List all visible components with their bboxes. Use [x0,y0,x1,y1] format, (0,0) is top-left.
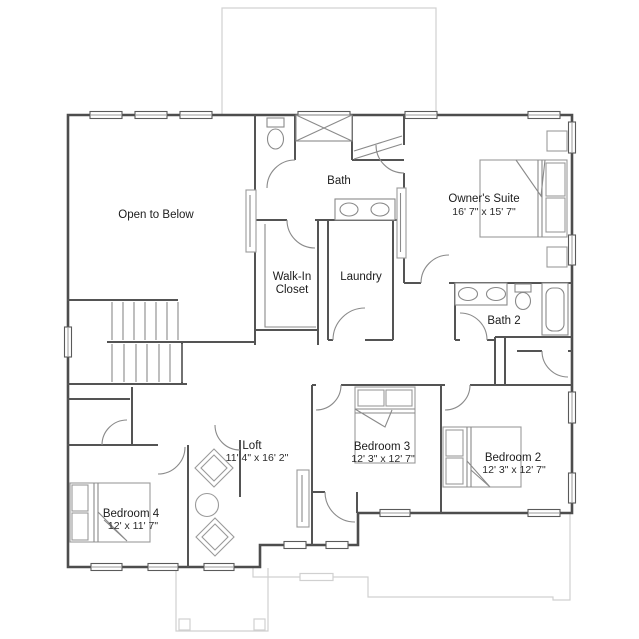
bookshelf [297,470,309,527]
floor-plan-page: Open to Below Bath Owner's Suite 16' 7" … [0,0,639,639]
room-dims-loft: 11' 4" x 16' 2" [226,452,289,464]
room-label-laundry: Laundry [340,271,382,283]
stair-treads-lower [112,344,182,382]
floor-plan-drawing: Open to Below Bath Owner's Suite 16' 7" … [0,0,639,639]
room-dims-bedroom-2: 12' 3" x 12' 7" [482,464,546,476]
door-arc [316,385,341,410]
room-label-loft: Loft [242,440,262,452]
toilet-icon [267,118,284,149]
room-dims-bedroom-4: 12' x 11' 7" [108,520,158,532]
toilet-icon [515,284,531,310]
room-label-walk-in-closet-line1: Walk-In [273,271,312,283]
door-arc [325,492,355,522]
room-label-bath: Bath [327,175,351,187]
door-arc [445,385,470,410]
bathtub-icon [542,283,568,335]
door-arc [102,420,127,445]
window [326,542,348,549]
double-vanity-icon [455,283,507,305]
door-arc [542,351,568,377]
window [284,542,306,549]
loft-chair [196,518,234,556]
room-label-bedroom-2: Bedroom 2 [485,452,541,464]
room-label-bedroom-4: Bedroom 4 [103,508,160,520]
room-label-owners-suite: Owner's Suite [448,193,519,205]
wall [495,337,505,385]
dresser [397,188,406,258]
loft-table [196,494,219,517]
room-label-bath-2: Bath 2 [487,315,520,327]
room-dims-owners-suite: 16' 7" x 15' 7" [452,206,516,218]
porch-post [179,619,190,630]
door-arc [287,220,315,248]
room-label-open-to-below: Open to Below [118,209,194,221]
upper-roof-outline [222,8,436,115]
stair-treads-upper [112,302,178,340]
porch-post [254,619,265,630]
door-arc [267,160,295,188]
room-label-walk-in-closet-line2: Closet [276,284,309,296]
roof-window-outline [300,574,333,581]
door-arc [421,255,449,283]
shelf [246,190,256,252]
room-label-bedroom-3: Bedroom 3 [354,441,410,453]
shower-icon [296,115,352,141]
door-arc [158,447,185,474]
double-vanity-icon [335,199,395,220]
door-arc [333,308,365,340]
door-arc [215,425,240,450]
room-dims-bedroom-3: 12' 3" x 12' 7" [351,453,415,465]
door-arc [460,313,487,340]
